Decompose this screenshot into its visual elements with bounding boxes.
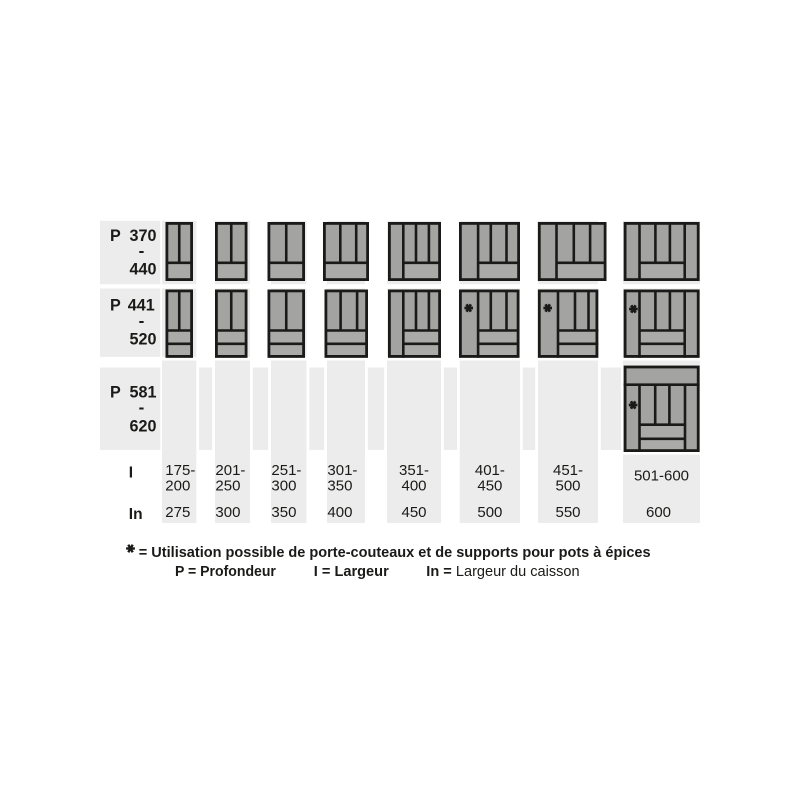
svg-text:P: P <box>110 382 121 401</box>
svg-text:351-: 351- <box>399 462 429 479</box>
svg-text:251-: 251- <box>271 462 301 479</box>
svg-text:In =: In = <box>426 564 452 580</box>
svg-text:P: P <box>110 295 121 314</box>
svg-text:350: 350 <box>327 477 352 494</box>
svg-text:350: 350 <box>271 504 296 521</box>
svg-text:I = Largeur: I = Largeur <box>314 564 389 580</box>
svg-text:600: 600 <box>646 504 671 521</box>
svg-text:In: In <box>129 506 143 523</box>
svg-text:Largeur du caisson: Largeur du caisson <box>456 564 580 580</box>
svg-text:300: 300 <box>271 477 296 494</box>
svg-text:P: P <box>110 226 121 245</box>
svg-text:300: 300 <box>215 504 240 521</box>
svg-text:401-: 401- <box>475 462 505 479</box>
svg-text:-: - <box>139 242 145 261</box>
svg-text:501-600: 501-600 <box>634 468 689 485</box>
svg-text:620: 620 <box>130 416 157 435</box>
svg-text:200: 200 <box>165 477 190 494</box>
svg-text:400: 400 <box>327 504 352 521</box>
svg-text:500: 500 <box>555 477 580 494</box>
svg-text:400: 400 <box>401 477 426 494</box>
svg-text:450: 450 <box>477 477 502 494</box>
svg-text:440: 440 <box>130 259 157 278</box>
svg-text:275: 275 <box>165 504 190 521</box>
svg-text:451-: 451- <box>553 462 583 479</box>
svg-text:250: 250 <box>215 477 240 494</box>
svg-text:520: 520 <box>130 329 157 348</box>
svg-text:P = Profondeur: P = Profondeur <box>175 564 276 581</box>
svg-text:500: 500 <box>477 504 502 521</box>
svg-text:-: - <box>139 398 145 417</box>
svg-text:550: 550 <box>555 504 580 521</box>
svg-text:175-: 175- <box>165 462 195 479</box>
svg-text:450: 450 <box>401 504 426 521</box>
svg-text:-: - <box>139 312 145 331</box>
svg-text:301-: 301- <box>327 462 357 479</box>
svg-text:201-: 201- <box>215 462 245 479</box>
svg-text:= Utilisation possible de port: = Utilisation possible de porte-couteaux… <box>139 545 651 561</box>
svg-text:I: I <box>129 464 133 481</box>
